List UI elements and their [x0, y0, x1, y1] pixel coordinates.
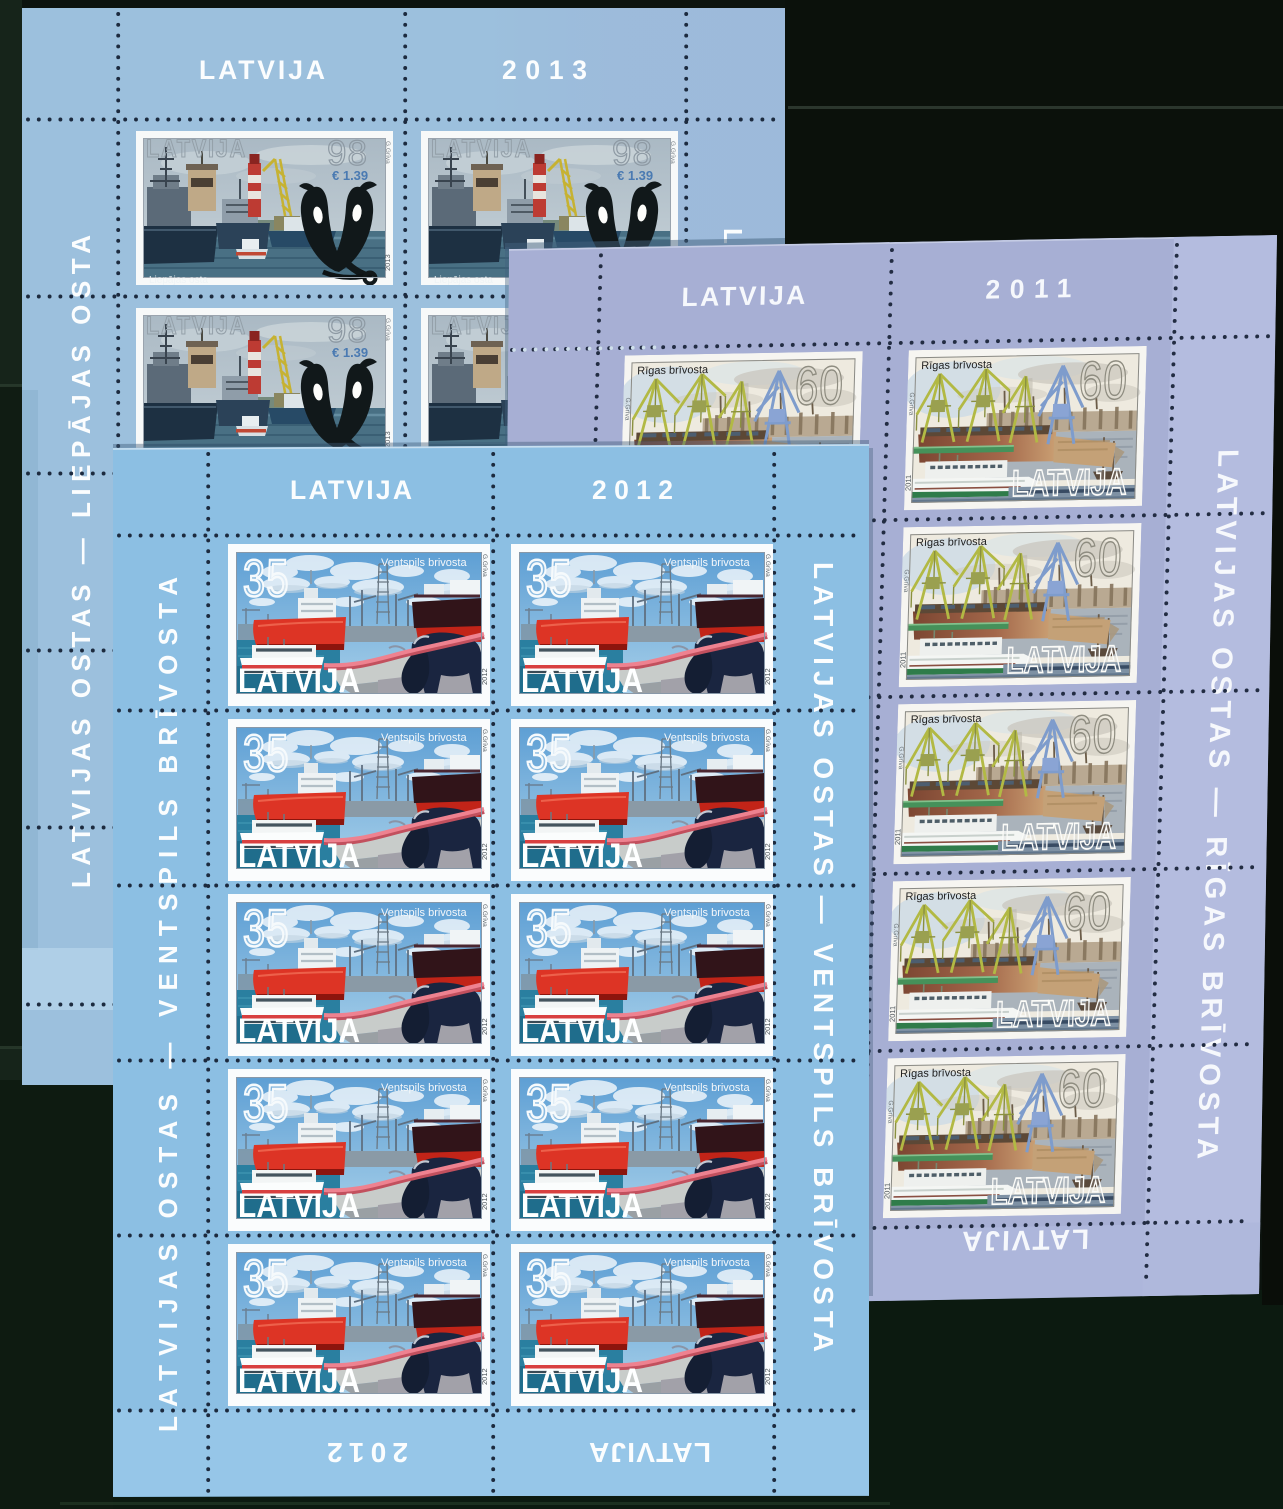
- svg-text:LATVIJA: LATVIJA: [681, 280, 806, 312]
- svg-text:LATVIJA: LATVIJA: [589, 1437, 711, 1468]
- svg-text:LATVIJA: LATVIJA: [962, 1224, 1090, 1257]
- svg-text:LATVIJAS OSTAS — LIEPĀJAS OSTA: LATVIJAS OSTAS — LIEPĀJAS OSTA: [66, 235, 96, 888]
- svg-text:LATVIJA: LATVIJA: [290, 475, 412, 505]
- svg-text:LATVIJAS OSTAS — VENTSPILS BRĪ: LATVIJAS OSTAS — VENTSPILS BRĪVOSTA: [808, 562, 839, 1352]
- svg-text:LATVIJA: LATVIJA: [199, 55, 325, 85]
